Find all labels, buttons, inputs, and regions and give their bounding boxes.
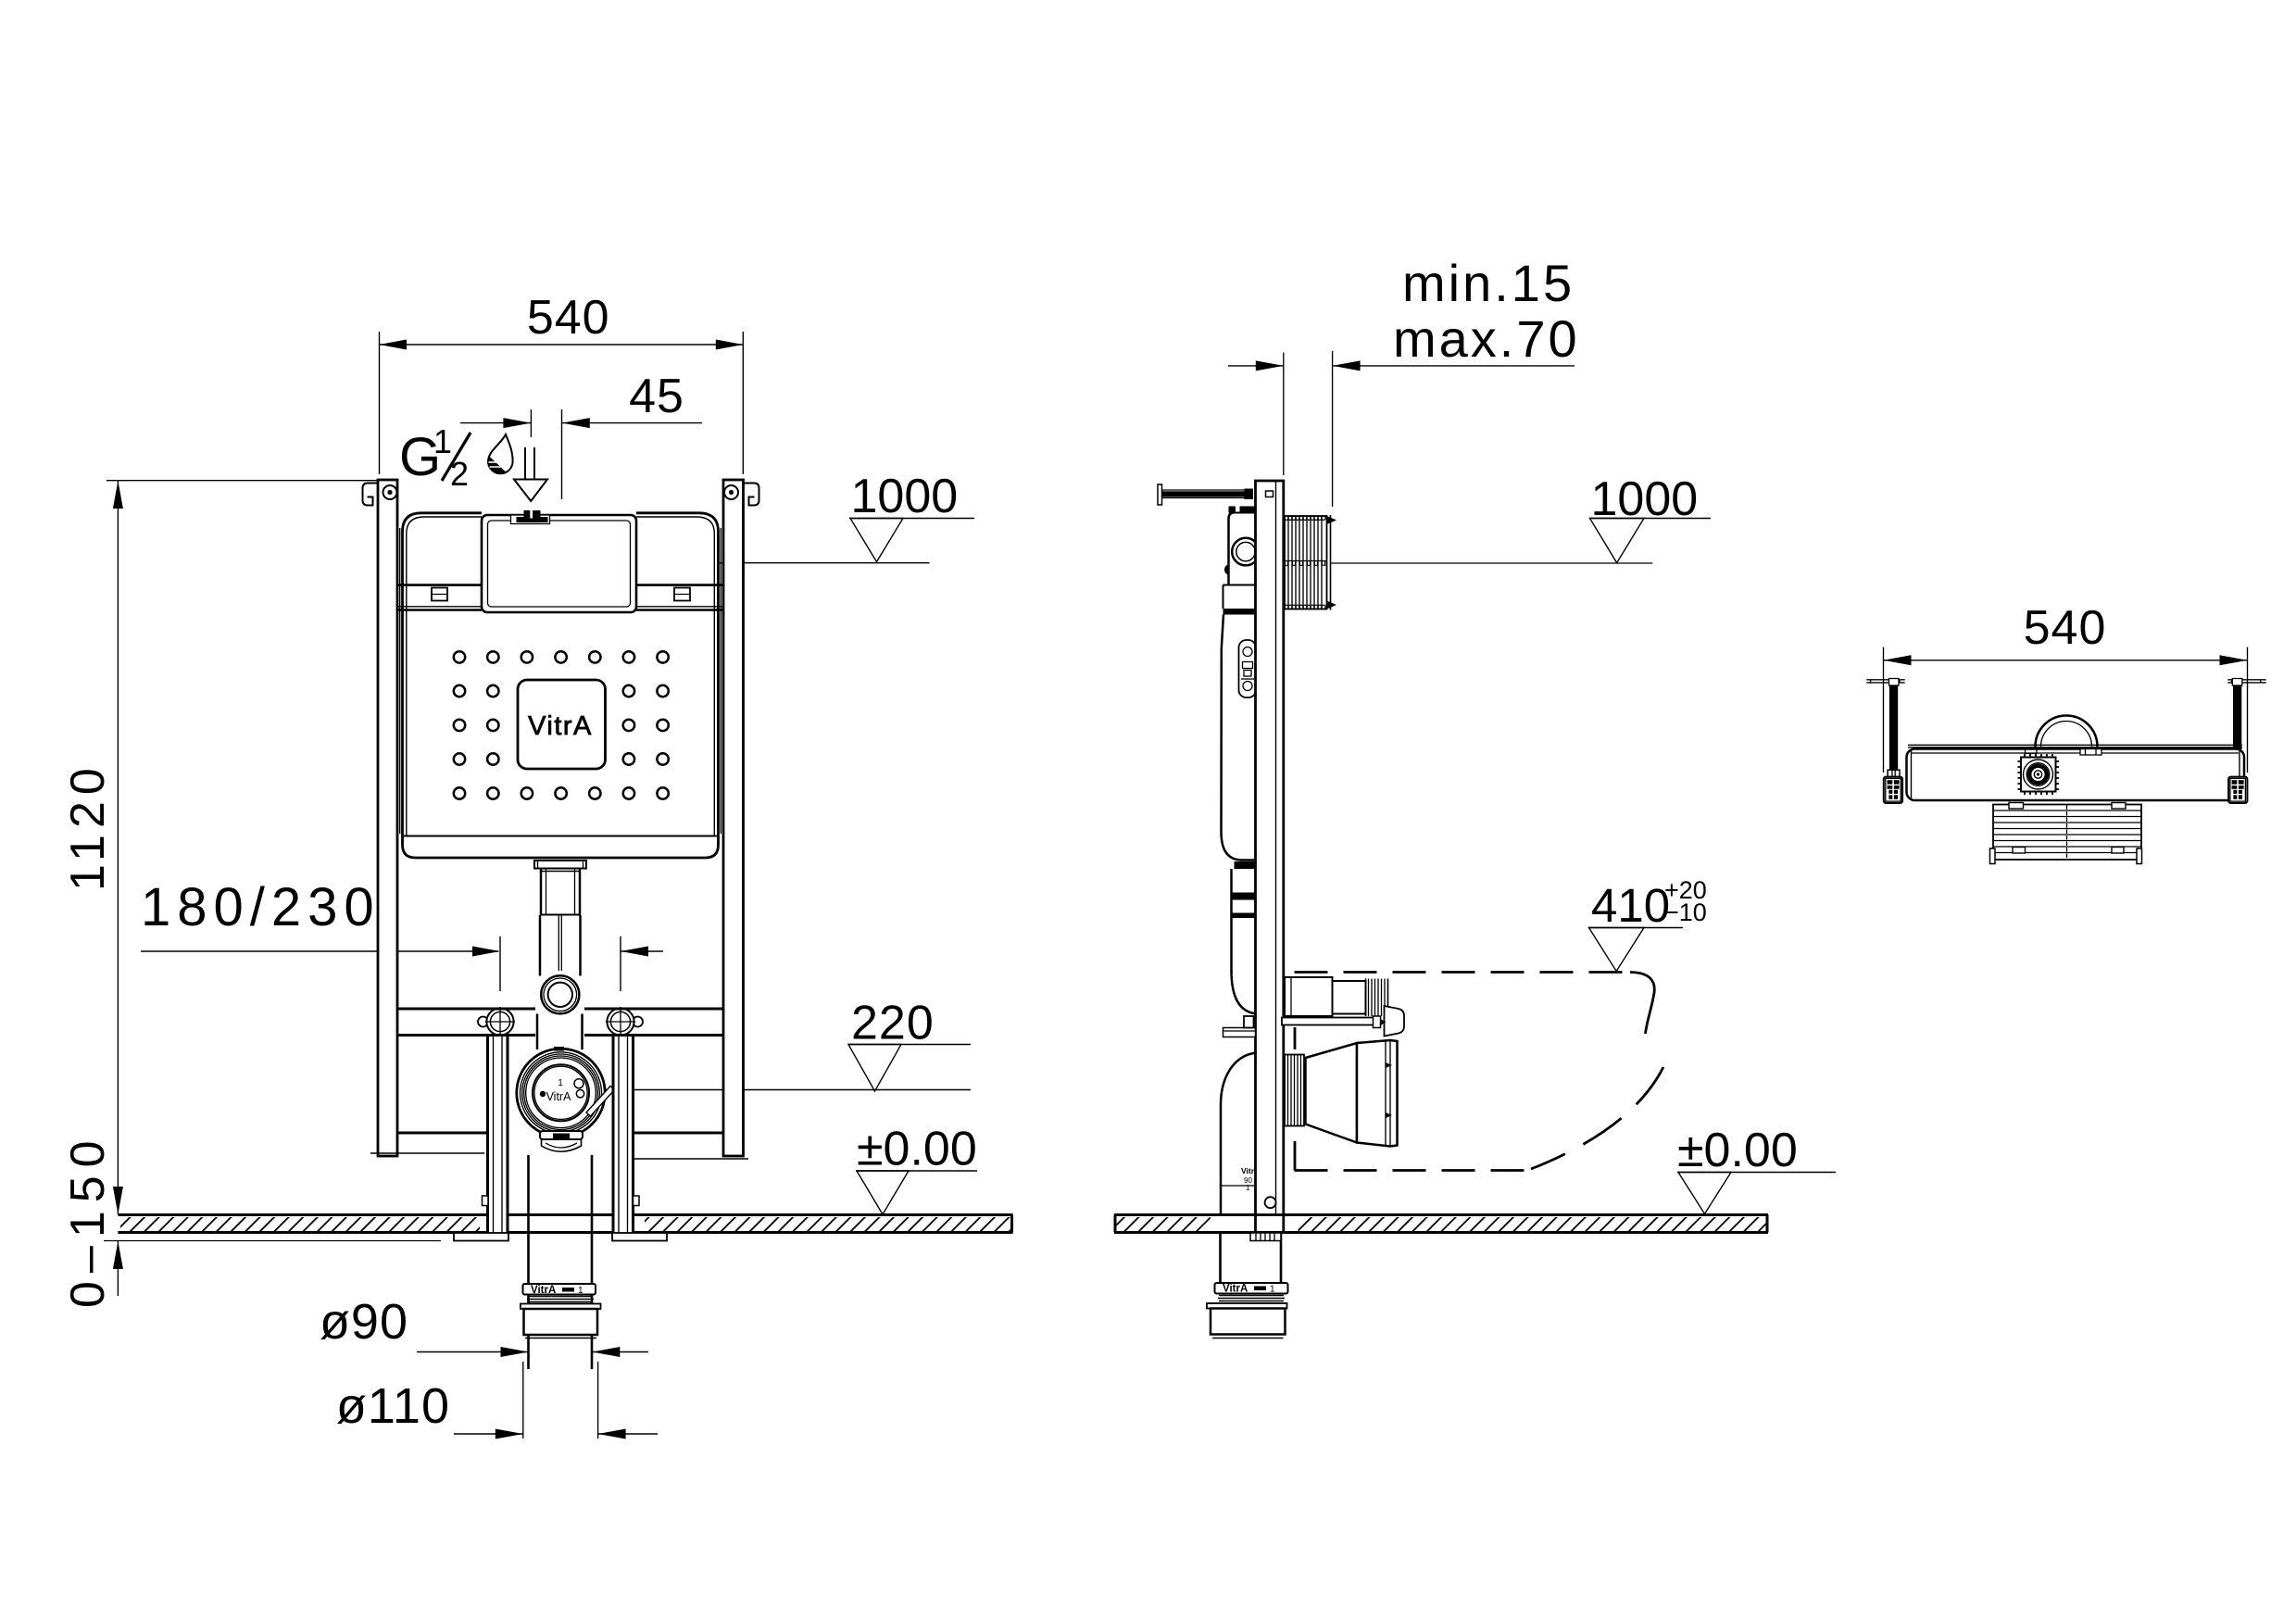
svg-text:410: 410 (1591, 879, 1670, 932)
svg-text:0–150: 0–150 (61, 1132, 115, 1308)
svg-text:VitrA: VitrA (546, 1090, 572, 1103)
svg-text:540: 540 (527, 291, 610, 345)
svg-text:Vitr: Vitr (1241, 1166, 1255, 1175)
svg-text:ø90: ø90 (320, 1294, 408, 1350)
svg-text:1120: 1120 (61, 761, 115, 891)
svg-text:45: 45 (629, 370, 684, 423)
svg-text:±0.00: ±0.00 (857, 1123, 977, 1176)
svg-text:220: 220 (851, 997, 935, 1050)
svg-text:max.70: max.70 (1393, 309, 1580, 368)
svg-text:VitrA: VitrA (528, 711, 593, 741)
svg-text:−10: −10 (1664, 898, 1707, 926)
svg-text:1000: 1000 (1591, 472, 1699, 526)
svg-text:VitrA: VitrA (531, 1285, 556, 1296)
svg-text:min.15: min.15 (1402, 254, 1575, 312)
svg-text:1: 1 (1270, 1285, 1275, 1295)
svg-text:540: 540 (2024, 601, 2107, 655)
svg-text:1000: 1000 (851, 470, 959, 523)
svg-text:±0.00: ±0.00 (1677, 1124, 1798, 1177)
svg-text:1: 1 (1246, 1184, 1250, 1192)
svg-text:1: 1 (578, 1286, 583, 1296)
svg-text:ø110: ø110 (336, 1378, 450, 1434)
svg-text:1: 1 (558, 1078, 563, 1088)
svg-text:180/230: 180/230 (141, 877, 381, 937)
svg-text:VitrA: VitrA (1223, 1284, 1248, 1295)
